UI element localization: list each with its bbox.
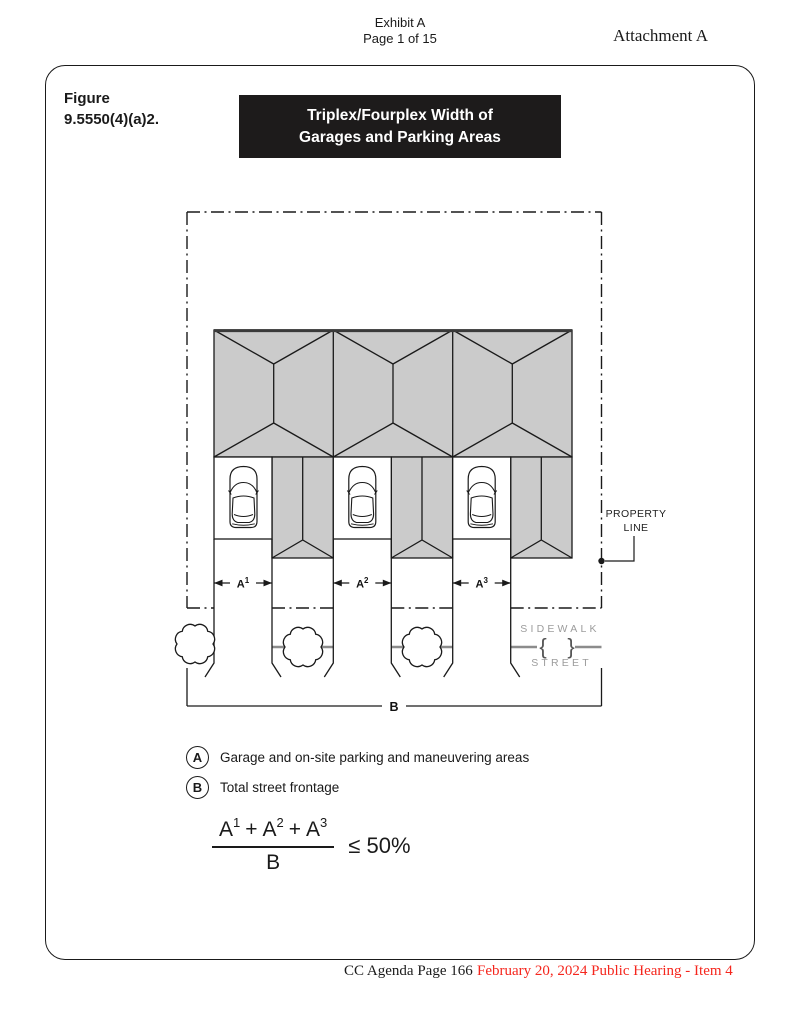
footer-agenda-page: CC Agenda Page 166 [344,963,473,980]
sidewalk-label: SIDEWALK [520,623,599,635]
svg-text:A3: A3 [475,576,488,591]
ratio-formula: A1+A2+A3 B ≤ 50% [212,816,411,875]
car-icon-3 [467,467,497,528]
driveway-edges [205,539,520,677]
legend-symbol-b: B [186,776,209,799]
svg-text:PROPERTY: PROPERTY [606,508,667,520]
street-trees [175,624,441,666]
legend-item-b: B Total street frontage [186,776,339,799]
dimension-a3: A3 [453,576,511,591]
tree-icon-2 [283,627,322,666]
street-break-left: { [539,634,546,659]
fraction-denominator: B [212,848,334,875]
dimension-a2: A2 [333,576,391,591]
footer-hearing-note: February 20, 2024 Public Hearing - Item … [477,963,733,980]
car-icon-2 [347,467,377,528]
street-break-right: } [567,634,574,659]
legend-text-b: Total street frontage [220,780,339,795]
frontage-bracket: B [187,668,602,714]
dimension-a1: A1 [214,576,272,591]
car-icon-1 [229,467,259,528]
street-label: STREET [531,657,592,669]
svg-text:LINE: LINE [624,522,649,534]
frontage-label: B [389,700,398,714]
legend-text-a: Garage and on-site parking and maneuveri… [220,750,529,765]
property-line-label: PROPERTY LINE [598,508,666,564]
document-page: Exhibit A Page 1 of 15 Attachment A Figu… [0,0,800,1012]
tree-icon-3 [402,627,441,666]
svg-text:A1: A1 [237,576,250,591]
fraction: A1+A2+A3 B [212,816,334,875]
legend-item-a: A Garage and on-site parking and maneuve… [186,746,529,769]
svg-text:A2: A2 [356,576,369,591]
fraction-numerator: A1+A2+A3 [212,816,334,848]
tree-icon-1 [175,624,214,663]
legend-symbol-a: A [186,746,209,769]
formula-comparison: ≤ 50% [348,833,410,859]
